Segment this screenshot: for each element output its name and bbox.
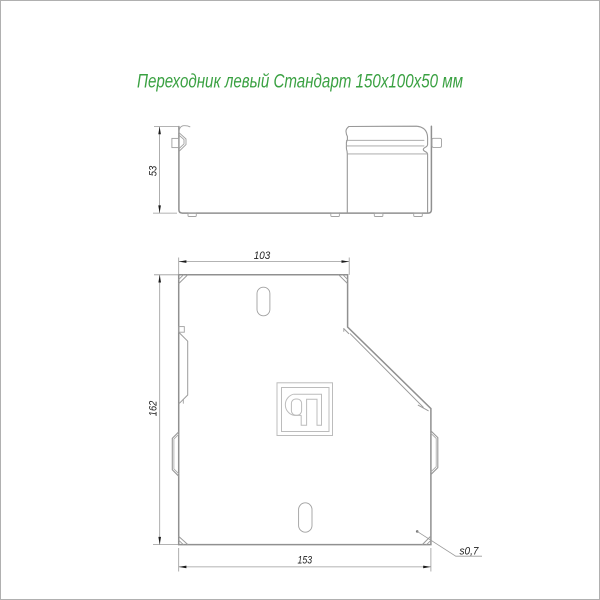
svg-text:53: 53 bbox=[147, 166, 159, 177]
svg-text:103: 103 bbox=[254, 250, 271, 262]
svg-text:Переходник левый Стандарт 150х: Переходник левый Стандарт 150х100х50 мм bbox=[137, 72, 463, 93]
svg-text:s0,7: s0,7 bbox=[460, 546, 480, 558]
svg-text:153: 153 bbox=[298, 554, 313, 566]
svg-text:162: 162 bbox=[147, 401, 159, 417]
